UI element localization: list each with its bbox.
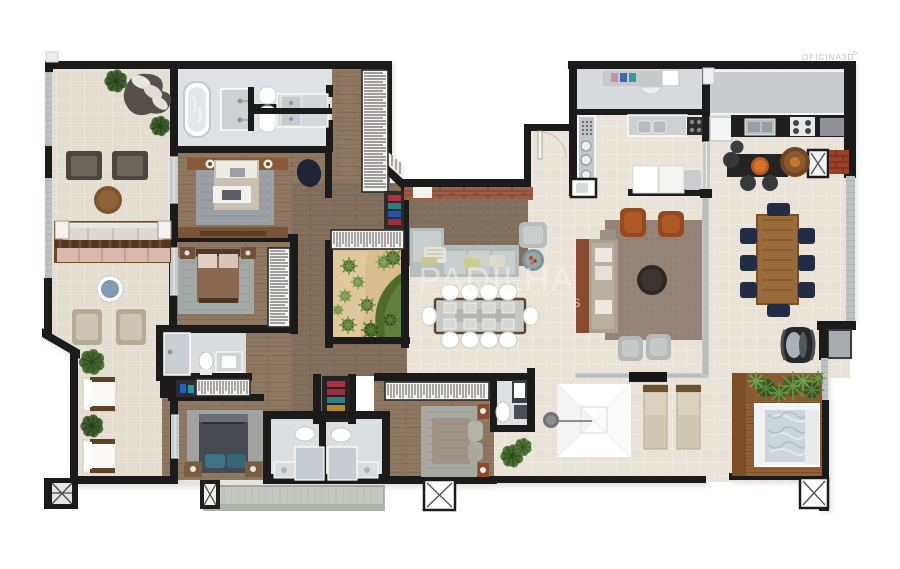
svg-text:OFICINA3D: OFICINA3D	[802, 52, 855, 62]
svg-text:PADILHA: PADILHA	[419, 261, 576, 299]
svg-text:S: S	[572, 296, 583, 310]
